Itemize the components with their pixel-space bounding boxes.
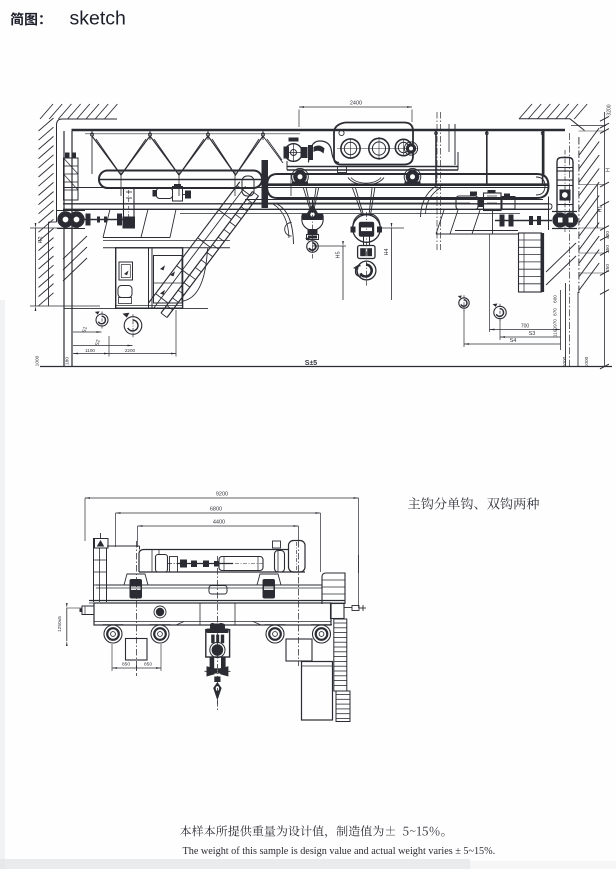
svg-text:2400: 2400 [350, 101, 362, 107]
svg-text:3200: 3200 [607, 104, 613, 115]
svg-text:S±5: S±5 [305, 360, 318, 367]
svg-text:1100: 1100 [85, 348, 95, 353]
svg-text:H4: H4 [384, 248, 390, 255]
svg-text:H2: H2 [38, 236, 44, 243]
svg-text:600: 600 [553, 295, 558, 303]
svg-text:H5: H5 [336, 251, 342, 258]
svg-text:1000: 1000 [35, 355, 41, 366]
svg-text:H1: H1 [598, 206, 604, 213]
svg-text:4400: 4400 [213, 520, 225, 526]
svg-text:970: 970 [553, 319, 558, 327]
svg-text:1100: 1100 [553, 327, 558, 337]
svg-text:850: 850 [144, 662, 152, 668]
svg-text:S3: S3 [529, 331, 536, 337]
svg-text:S4: S4 [510, 338, 517, 344]
svg-text:850: 850 [122, 662, 130, 668]
svg-text:400: 400 [605, 231, 611, 239]
svg-text:sketch: sketch [70, 8, 126, 30]
svg-text:1000: 1000 [584, 356, 590, 367]
svg-text:250: 250 [605, 264, 611, 272]
svg-text:180: 180 [65, 357, 71, 365]
svg-text:2000: 2000 [562, 356, 568, 367]
svg-text:1250±5: 1250±5 [57, 616, 63, 632]
svg-text:2200: 2200 [125, 348, 136, 353]
svg-text:9200: 9200 [216, 492, 228, 498]
svg-text:H: H [606, 168, 612, 172]
svg-text:6800: 6800 [210, 507, 222, 513]
svg-text:700: 700 [521, 324, 530, 330]
svg-text:870: 870 [553, 308, 558, 316]
svg-text:250: 250 [605, 245, 611, 253]
svg-text:The weight of this sample is: The weight of this sample is design valu… [183, 846, 496, 857]
